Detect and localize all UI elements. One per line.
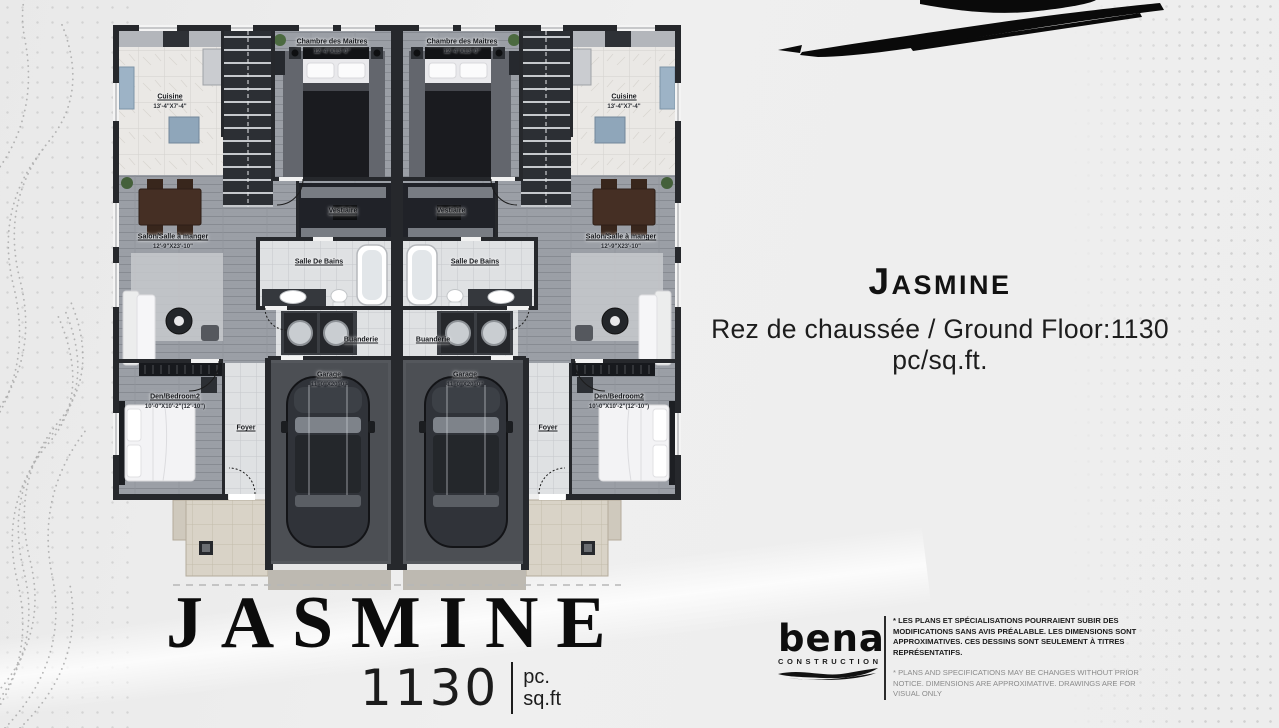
room-dim-cuisine-right: 13'-4"X7'-4" [607, 104, 640, 110]
sofa-icon [123, 291, 155, 365]
plant-icon [274, 34, 286, 46]
footer-plan-name: JASMINE [166, 586, 623, 660]
room-dim-den-left: 10'-0"X10'-2"(12'-10") [145, 404, 205, 410]
room-dim-den-right: 10'-0"X10'-2"(12'-10") [589, 404, 649, 410]
room-label-garage-left: Garage [317, 372, 341, 379]
room-label-den-left: Den/Bedroom2 [150, 394, 200, 401]
bena-wordmark: bena [778, 622, 878, 655]
area-divider [511, 662, 513, 714]
plan-title: Jasmine [700, 260, 1180, 304]
bed-master-icon [289, 47, 383, 177]
room-dim-chambre-left: 12'-4"X13'-0" [314, 49, 351, 55]
brush-stroke-graphic [760, 0, 1180, 70]
bathroom-fixtures [258, 241, 391, 308]
room-label-bains-left: Salle De Bains [295, 259, 343, 266]
floor-plan: Chambre des Maitres 12'-4"X13'-0" Chambr… [113, 25, 681, 593]
armchair-icon [201, 325, 219, 341]
floor-plan-drawing [113, 25, 681, 593]
car-icon [281, 377, 375, 547]
disclaimer-english: * PLANS AND SPECIFICATIONS MAY BE CHANGE… [893, 668, 1149, 700]
room-dim-cuisine-left: 13'-4"X7'-4" [153, 104, 186, 110]
room-label-buanderie-left: Buanderie [344, 337, 378, 344]
bed-den-icon [119, 401, 195, 485]
room-label-salon-left: Salon/Salle à manger [138, 234, 208, 241]
room-dim-chambre-right: 12'-4"X13'-0" [444, 49, 481, 55]
room-label-bains-right: Salle De Bains [451, 259, 499, 266]
desk-icon [275, 51, 285, 75]
room-label-cuisine-left: Cuisine [157, 94, 182, 101]
disclaimer-french: * LES PLANS ET SPÉCIALISATIONS POURRAIEN… [893, 616, 1149, 659]
room-label-foyer-right: Foyer [538, 425, 557, 432]
title-block: Jasmine Rez de chaussée / Ground Floor:1… [700, 260, 1180, 376]
room-label-vestiaire-right: Vestiaire [437, 208, 466, 215]
plan-subtitle: Rez de chaussée / Ground Floor:1130 pc/s… [700, 314, 1180, 376]
room-label-buanderie-right: Buanderie [416, 337, 450, 344]
room-dim-garage-left: 11'-0"X20'-0" [311, 382, 347, 388]
area-unit-pc: pc. [523, 666, 561, 688]
room-label-chambre-left: Chambre des Maitres [297, 39, 368, 46]
room-label-chambre-right: Chambre des Maitres [427, 39, 498, 46]
plant-icon [121, 177, 133, 189]
room-label-foyer-left: Foyer [236, 425, 255, 432]
bena-logo: bena CONSTRUCTION [778, 622, 878, 685]
laundry-fixtures [276, 308, 391, 358]
page-background: Chambre des Maitres 12'-4"X13'-0" Chambr… [0, 0, 1279, 728]
dresser-icon [201, 377, 217, 393]
room-label-cuisine-right: Cuisine [611, 94, 636, 101]
brand-divider [884, 616, 886, 700]
area-unit-sqft: sq.ft [523, 688, 561, 710]
bena-tagline: CONSTRUCTION [778, 657, 878, 666]
room-label-salon-right: Salon/Salle à manger [586, 234, 656, 241]
area-value: 1130 [360, 663, 499, 713]
area-block: 1130 pc. sq.ft [360, 662, 561, 714]
den-closet [139, 363, 223, 376]
room-dim-salon-left: 12'-9"X23'-10" [153, 244, 193, 250]
staircase [223, 31, 273, 207]
room-label-den-right: Den/Bedroom2 [594, 394, 644, 401]
wave-swoosh-icon [778, 666, 878, 680]
area-units: pc. sq.ft [523, 666, 561, 710]
room-dim-garage-right: 11'-0"X20'-0" [447, 382, 483, 388]
room-label-vestiaire-left: Vestiaire [329, 208, 358, 215]
room-dim-salon-right: 12'-9"X23'-10" [601, 244, 641, 250]
room-label-garage-right: Garage [453, 372, 477, 379]
